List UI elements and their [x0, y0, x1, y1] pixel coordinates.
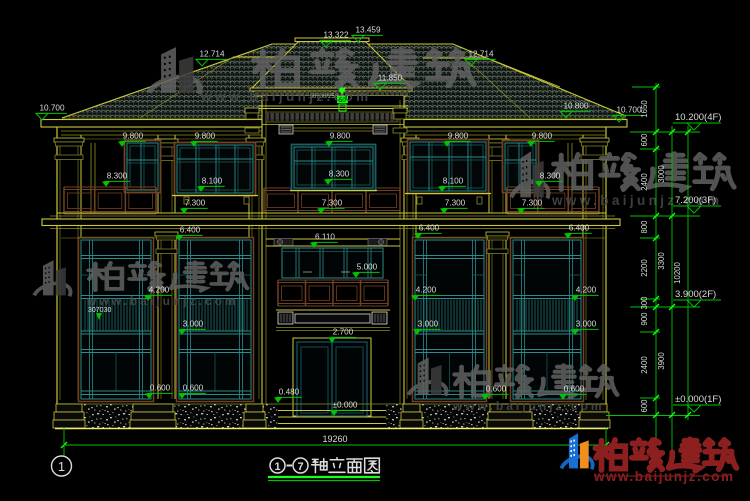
svg-text:0.600: 0.600 [183, 384, 204, 393]
svg-text:8.100: 8.100 [202, 177, 223, 186]
svg-text:7: 7 [297, 461, 303, 473]
svg-text:9.800: 9.800 [448, 132, 469, 141]
svg-text:8.100: 8.100 [443, 177, 464, 186]
svg-text:10200: 10200 [673, 261, 682, 283]
svg-text:3.000: 3.000 [576, 320, 597, 329]
svg-text:8.300: 8.300 [329, 170, 350, 179]
svg-text:13.459: 13.459 [355, 26, 380, 35]
svg-text:8.300: 8.300 [540, 172, 561, 181]
svg-text:600: 600 [640, 399, 649, 413]
svg-text:9.800: 9.800 [123, 132, 144, 141]
svg-text:2400: 2400 [640, 173, 649, 191]
svg-text:6.400: 6.400 [180, 226, 201, 235]
svg-text:4.200: 4.200 [576, 286, 597, 295]
svg-text:4.200: 4.200 [416, 286, 437, 295]
svg-text:2200: 2200 [640, 259, 649, 277]
svg-text:6.400: 6.400 [419, 224, 440, 233]
svg-text:0.600: 0.600 [150, 384, 171, 393]
svg-text:www.baijunjz.com: www.baijunjz.com [86, 294, 239, 308]
svg-text:19260: 19260 [322, 434, 347, 444]
svg-text:0.480: 0.480 [279, 388, 300, 397]
svg-text:7.300: 7.300 [322, 199, 343, 208]
svg-text:10.700: 10.700 [39, 104, 64, 113]
svg-text:10.800: 10.800 [563, 102, 588, 111]
svg-text:7.300: 7.300 [522, 199, 543, 208]
svg-text:10.200(4F): 10.200(4F) [675, 112, 721, 123]
svg-text:3000: 3000 [657, 165, 666, 183]
svg-text:7.300: 7.300 [445, 199, 466, 208]
svg-text:3.000: 3.000 [418, 320, 439, 329]
svg-text:600: 600 [640, 133, 649, 147]
svg-text:www.baijunjz.com: www.baijunjz.com [452, 399, 605, 413]
svg-text:9.800: 9.800 [195, 132, 216, 141]
svg-text:3.900(2F): 3.900(2F) [675, 289, 716, 300]
svg-text:10.700: 10.700 [616, 106, 641, 115]
svg-text:900: 900 [640, 312, 649, 326]
svg-text:800: 800 [640, 220, 649, 234]
svg-text:4.200: 4.200 [149, 286, 170, 295]
svg-text:300: 300 [640, 296, 649, 310]
svg-text:1650: 1650 [640, 100, 649, 118]
svg-text:2.700: 2.700 [333, 328, 354, 337]
svg-text:7.200(3F): 7.200(3F) [675, 195, 716, 206]
svg-text:www.baijunjz.com: www.baijunjz.com [200, 89, 372, 104]
svg-text:11.850: 11.850 [378, 74, 403, 83]
svg-text:13.322: 13.322 [323, 31, 348, 40]
svg-text:3300: 3300 [657, 252, 666, 270]
svg-text:12.714: 12.714 [199, 50, 224, 59]
svg-text:1: 1 [274, 461, 280, 473]
svg-text:5.000: 5.000 [357, 263, 378, 272]
svg-text:6.400: 6.400 [569, 224, 590, 233]
svg-text:1: 1 [58, 459, 65, 474]
svg-text:8.300: 8.300 [107, 172, 128, 181]
svg-text:12.714: 12.714 [468, 50, 493, 59]
svg-text:9.800: 9.800 [532, 132, 553, 141]
svg-text:307030: 307030 [88, 307, 111, 314]
svg-text:0.600: 0.600 [486, 385, 507, 394]
svg-text:3900: 3900 [657, 352, 666, 370]
svg-text:9.800: 9.800 [330, 132, 351, 141]
svg-text:7.300: 7.300 [185, 199, 206, 208]
svg-text:6.110: 6.110 [315, 233, 335, 242]
svg-text:±0.000(1F): ±0.000(1F) [675, 394, 721, 405]
svg-text:0.600: 0.600 [564, 385, 585, 394]
svg-text:±0.000: ±0.000 [333, 401, 358, 410]
svg-text:3.000: 3.000 [183, 320, 204, 329]
svg-text:2400: 2400 [640, 356, 649, 374]
